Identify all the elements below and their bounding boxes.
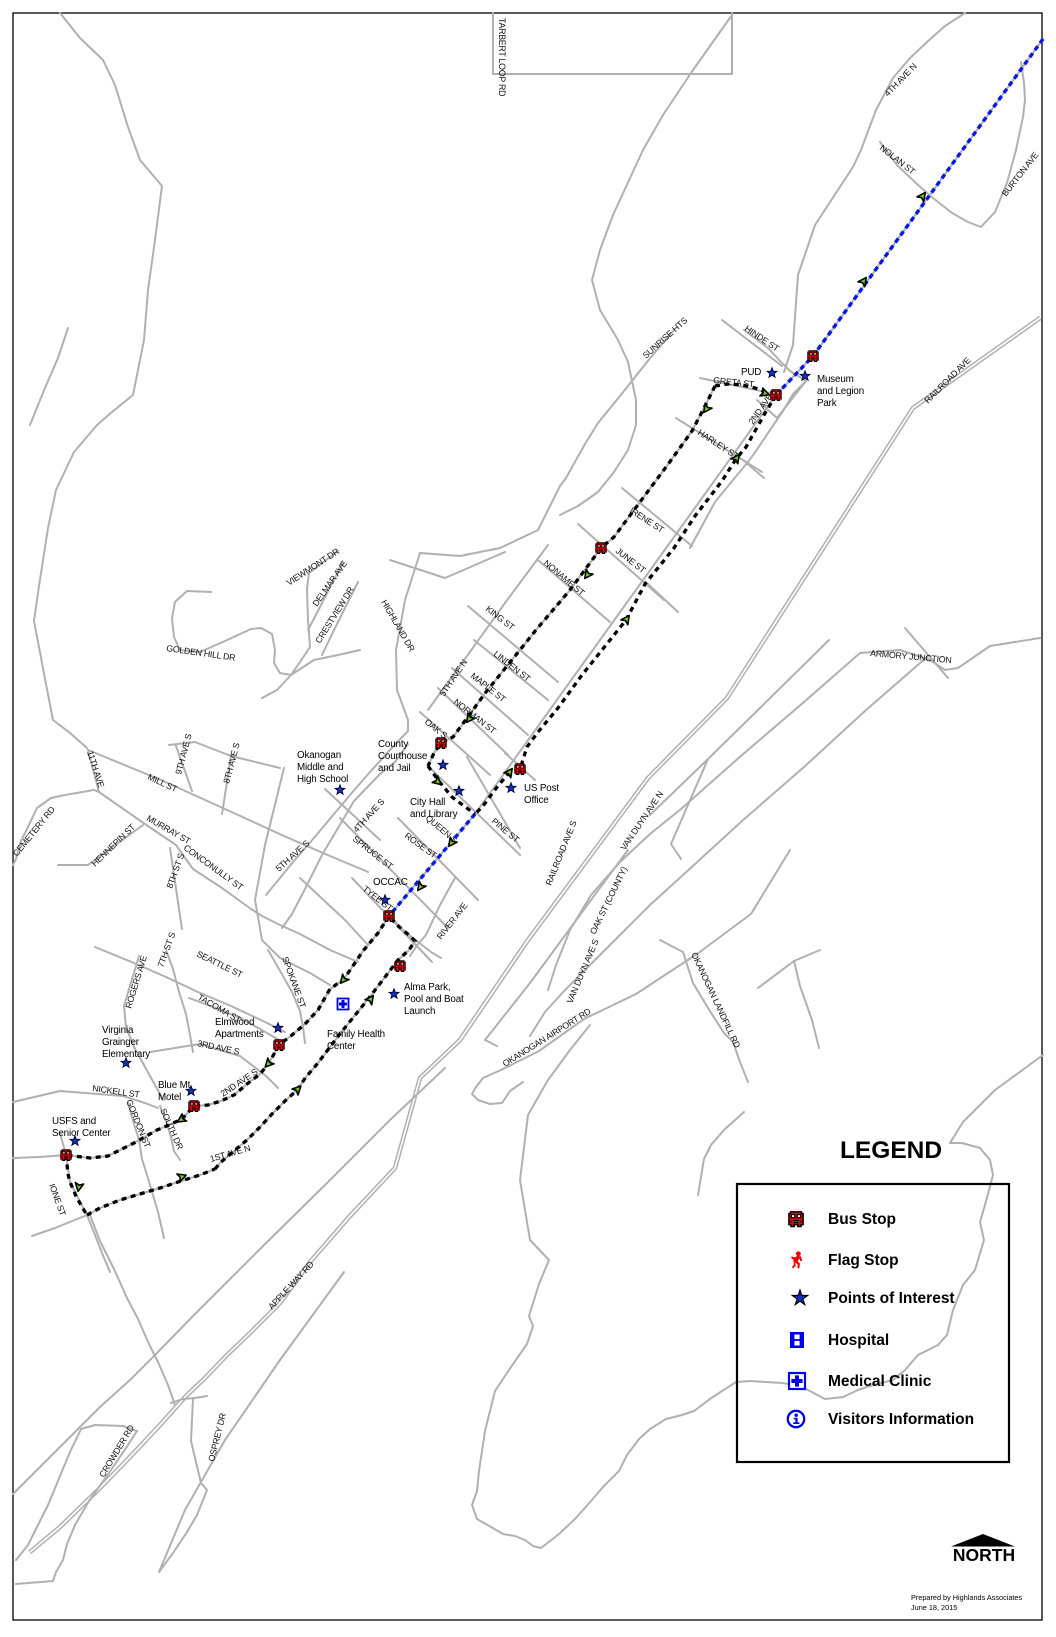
svg-text:Medical Clinic: Medical Clinic: [828, 1373, 932, 1390]
svg-text:Virginia: Virginia: [102, 1025, 134, 1036]
svg-text:Points of Interest: Points of Interest: [828, 1290, 955, 1307]
svg-text:Courthouse: Courthouse: [378, 751, 428, 762]
svg-text:County: County: [378, 739, 408, 750]
svg-text:Prepared by Highlands Associat: Prepared by Highlands Associates: [911, 1593, 1022, 1602]
svg-text:Bus Stop: Bus Stop: [828, 1211, 896, 1228]
svg-text:City Hall: City Hall: [410, 797, 445, 808]
svg-text:USFS and: USFS and: [52, 1116, 96, 1127]
svg-text:Flag Stop: Flag Stop: [828, 1252, 899, 1269]
svg-text:Center: Center: [327, 1041, 356, 1052]
svg-text:Hospital: Hospital: [828, 1332, 889, 1349]
svg-text:Elementary: Elementary: [102, 1049, 150, 1060]
svg-text:Pool and Boat: Pool and Boat: [404, 994, 464, 1005]
svg-text:Park: Park: [817, 398, 837, 409]
svg-text:June 18, 2015: June 18, 2015: [911, 1603, 957, 1612]
svg-text:PUD: PUD: [741, 367, 761, 378]
svg-text:High School: High School: [297, 774, 348, 785]
svg-text:US Post: US Post: [524, 783, 559, 794]
svg-text:Okanogan: Okanogan: [297, 750, 341, 761]
svg-text:Launch: Launch: [404, 1006, 435, 1017]
svg-text:Visitors Information: Visitors Information: [828, 1411, 974, 1428]
svg-text:NORTH: NORTH: [953, 1545, 1015, 1565]
svg-text:Apartments: Apartments: [215, 1029, 264, 1040]
svg-text:Elmwood: Elmwood: [215, 1017, 254, 1028]
svg-text:Museum: Museum: [817, 374, 854, 385]
svg-text:Family Health: Family Health: [327, 1029, 385, 1040]
svg-text:Office: Office: [524, 795, 549, 806]
svg-text:LEGEND: LEGEND: [840, 1137, 942, 1164]
svg-text:Grainger: Grainger: [102, 1037, 140, 1048]
svg-text:Blue Mt.: Blue Mt.: [158, 1080, 193, 1091]
svg-text:and Legion: and Legion: [817, 386, 864, 397]
svg-text:and Jail: and Jail: [378, 763, 411, 774]
svg-text:Middle and: Middle and: [297, 762, 343, 773]
svg-text:OCCAC: OCCAC: [373, 877, 408, 888]
svg-text:Motel: Motel: [158, 1092, 181, 1103]
svg-text:and Library: and Library: [410, 809, 458, 820]
svg-text:TARBERT LOOP RD: TARBERT LOOP RD: [497, 18, 507, 96]
svg-text:Alma Park,: Alma Park,: [404, 982, 450, 993]
svg-text:Senior Center: Senior Center: [52, 1128, 111, 1139]
